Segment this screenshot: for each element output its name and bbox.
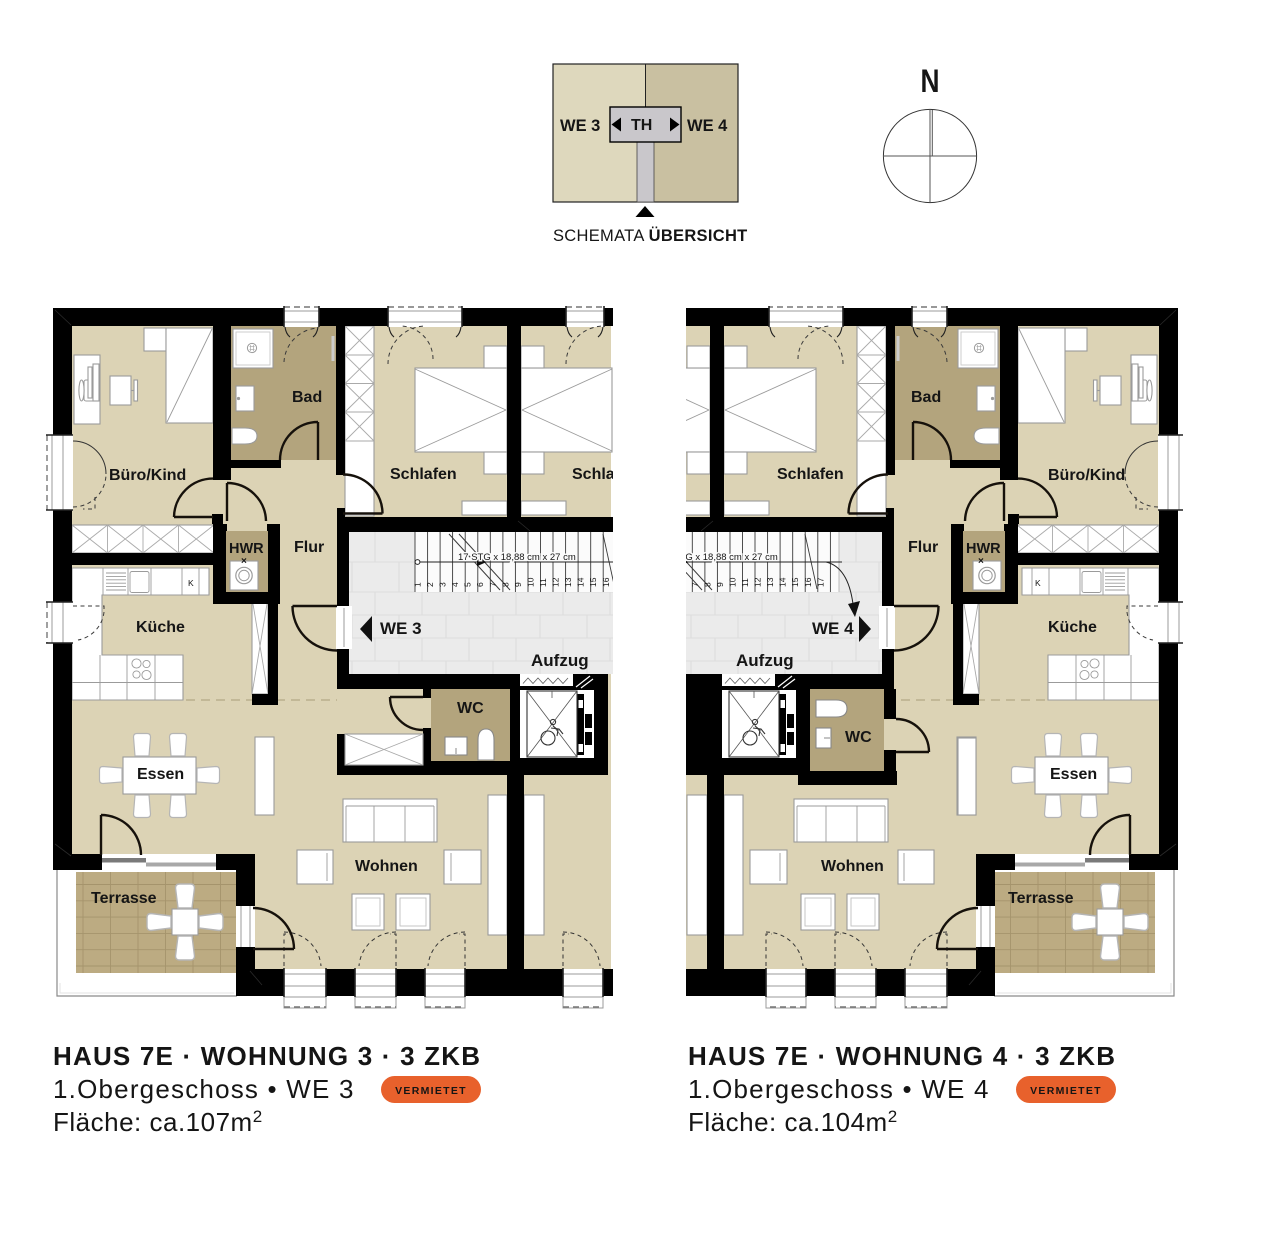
svg-text:HAUS 7E · WOHNUNG 3 · 3 ZKB: HAUS 7E · WOHNUNG 3 · 3 ZKB [53, 1041, 481, 1071]
svg-text:Schlafen: Schlafen [777, 466, 844, 483]
svg-text:WC: WC [845, 729, 872, 746]
svg-text:Fläche: ca.107m2: Fläche: ca.107m2 [53, 1107, 263, 1137]
svg-text:TH: TH [631, 117, 652, 134]
svg-text:Büro/Kind: Büro/Kind [109, 467, 186, 484]
svg-text:Flur: Flur [294, 539, 324, 556]
svg-text:HAUS 7E · WOHNUNG 4 · 3 ZKB: HAUS 7E · WOHNUNG 4 · 3 ZKB [688, 1041, 1116, 1071]
svg-text:Büro/Kind: Büro/Kind [1048, 467, 1125, 484]
svg-text:WE 4: WE 4 [812, 619, 854, 638]
svg-text:Schlafen: Schlafen [390, 466, 457, 483]
svg-text:Wohnen: Wohnen [821, 858, 884, 875]
svg-text:Flur: Flur [908, 539, 938, 556]
svg-text:WE 4: WE 4 [687, 117, 728, 135]
svg-text:WC: WC [457, 700, 484, 717]
svg-text:N: N [921, 63, 940, 99]
svg-text:WE 3: WE 3 [380, 619, 422, 638]
svg-text:×: × [978, 556, 984, 567]
svg-text:HWR: HWR [229, 541, 264, 557]
svg-text:WE 3: WE 3 [560, 117, 600, 135]
svg-text:Küche: Küche [1048, 619, 1097, 636]
svg-text:Wohnen: Wohnen [355, 858, 418, 875]
svg-text:Aufzug: Aufzug [736, 651, 794, 670]
svg-text:×: × [241, 556, 247, 567]
svg-text:1.Obergeschoss • WE 4: 1.Obergeschoss • WE 4 [688, 1074, 990, 1104]
svg-text:Fläche: ca.104m2: Fläche: ca.104m2 [688, 1107, 898, 1137]
svg-text:Bad: Bad [292, 389, 322, 406]
svg-text:Aufzug: Aufzug [531, 651, 589, 670]
svg-text:Terrasse: Terrasse [1008, 890, 1074, 907]
svg-text:HWR: HWR [966, 541, 1001, 557]
svg-text:VERMIETET: VERMIETET [1030, 1085, 1102, 1097]
svg-text:Terrasse: Terrasse [91, 890, 157, 907]
svg-text:Küche: Küche [136, 619, 185, 636]
svg-text:K: K [188, 578, 194, 588]
svg-text:Essen: Essen [1050, 766, 1097, 783]
svg-text:VERMIETET: VERMIETET [395, 1085, 467, 1097]
svg-text:1.Obergeschoss • WE 3: 1.Obergeschoss • WE 3 [53, 1074, 355, 1104]
svg-text:Bad: Bad [911, 389, 941, 406]
svg-text:K: K [1035, 578, 1041, 588]
svg-text:Essen: Essen [137, 766, 184, 783]
svg-text:SCHEMATA ÜBERSICHT: SCHEMATA ÜBERSICHT [553, 226, 748, 245]
